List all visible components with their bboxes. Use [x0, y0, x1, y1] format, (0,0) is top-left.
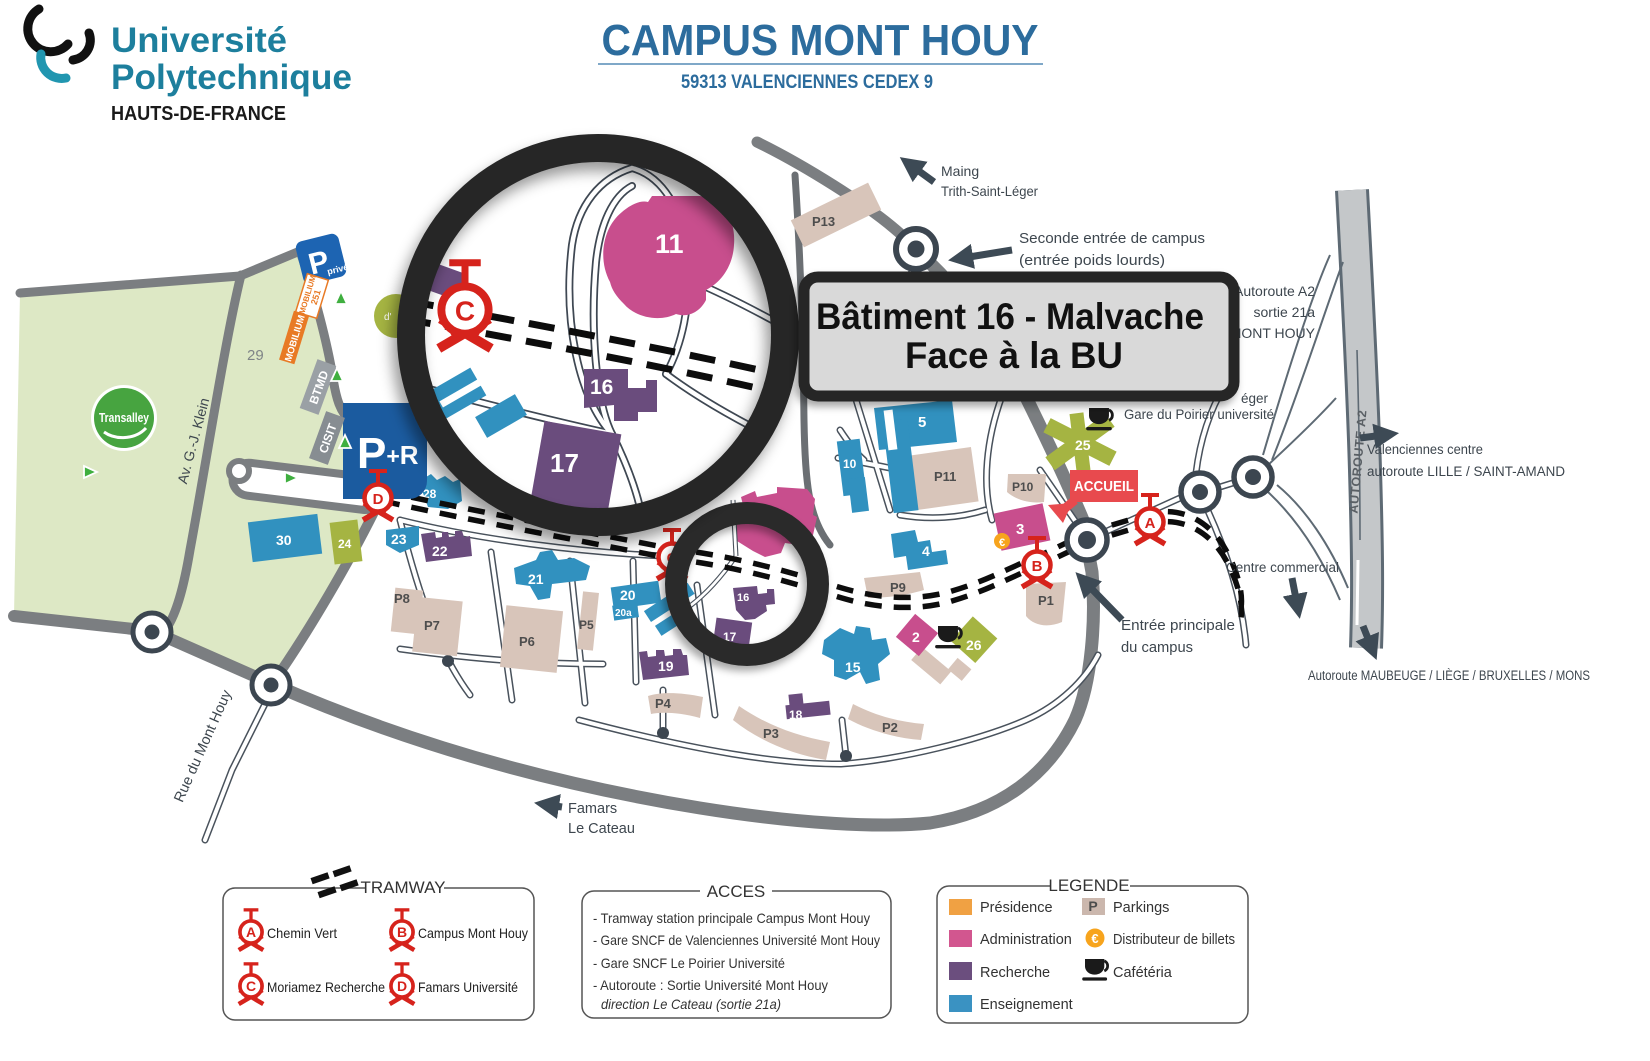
svg-text:sortie 21a: sortie 21a: [1254, 304, 1316, 320]
svg-text:16: 16: [590, 376, 613, 399]
svg-text:18: 18: [789, 708, 803, 722]
svg-text:4: 4: [922, 543, 930, 559]
svg-text:29: 29: [247, 347, 264, 364]
svg-text:P10: P10: [1012, 480, 1034, 494]
svg-text:- Gare SNCF de Valenciennes Un: - Gare SNCF de Valenciennes Université M…: [593, 932, 880, 948]
svg-text:16: 16: [737, 592, 749, 604]
svg-text:P8: P8: [394, 591, 410, 606]
svg-text:5: 5: [918, 414, 926, 431]
svg-text:Entrée principale: Entrée principale: [1121, 618, 1235, 634]
svg-text:Transalley: Transalley: [99, 410, 150, 425]
svg-text:- Tramway station principale C: - Tramway station principale Campus Mont…: [593, 910, 870, 926]
svg-text:P5: P5: [579, 618, 594, 632]
svg-text:Université: Université: [111, 21, 287, 60]
svg-text:(entrée poids lourds): (entrée poids lourds): [1019, 252, 1165, 269]
svg-text:C: C: [246, 978, 256, 994]
svg-text:Valenciennes centre: Valenciennes centre: [1367, 442, 1483, 457]
svg-text:ACCUEIL: ACCUEIL: [1074, 478, 1134, 495]
svg-text:Trith-Saint-Léger: Trith-Saint-Léger: [941, 183, 1038, 199]
svg-text:11: 11: [655, 229, 684, 259]
svg-text:LEGENDE: LEGENDE: [1048, 876, 1129, 895]
svg-text:A: A: [246, 924, 256, 940]
svg-text:Recherche: Recherche: [980, 965, 1050, 981]
svg-text:Administration: Administration: [980, 932, 1072, 948]
svg-text:D: D: [397, 978, 407, 994]
svg-text:Seconde entrée de campus: Seconde entrée de campus: [1019, 230, 1205, 247]
svg-text:- Gare SNCF Le Poirier Univers: - Gare SNCF Le Poirier Université: [593, 955, 785, 971]
svg-text:59313 VALENCIENNES CEDEX 9: 59313 VALENCIENNES CEDEX 9: [681, 72, 933, 93]
svg-text:P6: P6: [519, 634, 535, 649]
svg-text:Cafétéria: Cafétéria: [1113, 965, 1173, 981]
svg-text:€: €: [1091, 931, 1098, 946]
svg-text:B: B: [397, 924, 407, 940]
svg-text:P: P: [1088, 898, 1097, 914]
svg-text:Centre commercial: Centre commercial: [1226, 560, 1339, 575]
svg-text:Face à la BU: Face à la BU: [905, 335, 1123, 376]
svg-text:17: 17: [550, 448, 579, 478]
svg-text:Autoroute A2: Autoroute A2: [1234, 283, 1315, 299]
svg-text:Chemin Vert: Chemin Vert: [267, 925, 337, 941]
svg-text:Polytechnique: Polytechnique: [111, 58, 352, 97]
svg-text:26: 26: [966, 637, 982, 653]
svg-text:Gare du Poirier université: Gare du Poirier université: [1124, 407, 1274, 422]
svg-text:20a: 20a: [615, 608, 632, 619]
svg-text:Distributeur de billets: Distributeur de billets: [1113, 932, 1235, 948]
svg-text:Autoroute MAUBEUGE / LIÈGE / B: Autoroute MAUBEUGE / LIÈGE / BRUXELLES /…: [1308, 668, 1590, 683]
svg-text:25: 25: [1075, 437, 1091, 453]
svg-text:TRAMWAY: TRAMWAY: [361, 878, 446, 897]
svg-text:15: 15: [845, 659, 861, 675]
svg-text:Famars: Famars: [568, 801, 617, 817]
svg-text:P7: P7: [424, 618, 440, 633]
svg-text:direction Le Cateau (sortie 21: direction Le Cateau (sortie 21a): [601, 996, 781, 1012]
svg-text:CAMPUS MONT HOUY: CAMPUS MONT HOUY: [602, 16, 1039, 65]
svg-text:D: D: [373, 491, 384, 508]
svg-text:Moriamez Recherche: Moriamez Recherche: [267, 979, 385, 995]
svg-text:autoroute LILLE / SAINT-AMAND: autoroute LILLE / SAINT-AMAND: [1367, 464, 1565, 479]
svg-text:P13: P13: [812, 214, 835, 229]
svg-text:A: A: [1145, 515, 1156, 532]
svg-text:P4: P4: [655, 696, 672, 711]
svg-text:P3: P3: [763, 726, 779, 741]
svg-text:Le Cateau: Le Cateau: [568, 821, 635, 837]
svg-text:23: 23: [391, 531, 407, 547]
svg-text:B: B: [1032, 558, 1043, 575]
svg-text:d': d': [384, 312, 392, 323]
svg-text:ACCES: ACCES: [707, 882, 766, 901]
svg-text:P11: P11: [934, 469, 956, 484]
svg-text:Bâtiment 16 - Malvache: Bâtiment 16 - Malvache: [816, 296, 1204, 337]
svg-text:- Autoroute : Sortie Universit: - Autoroute : Sortie Université Mont Hou…: [593, 977, 828, 993]
svg-text:€: €: [999, 537, 1005, 549]
svg-text:Famars Université: Famars Université: [418, 979, 518, 995]
svg-text:24: 24: [338, 537, 352, 551]
svg-text:Maing: Maing: [941, 163, 979, 179]
svg-text:HAUTS-DE-FRANCE: HAUTS-DE-FRANCE: [111, 103, 286, 125]
svg-text:19: 19: [658, 658, 674, 674]
svg-text:Présidence: Présidence: [980, 900, 1053, 916]
svg-text:Campus Mont Houy: Campus Mont Houy: [418, 925, 528, 941]
svg-text:30: 30: [276, 532, 292, 548]
svg-text:du campus: du campus: [1121, 640, 1193, 656]
svg-text:Parkings: Parkings: [1113, 900, 1169, 916]
svg-text:3: 3: [1016, 521, 1024, 538]
svg-text:20: 20: [620, 587, 636, 603]
svg-text:21: 21: [528, 571, 544, 587]
svg-text:MONT HOUY: MONT HOUY: [1230, 325, 1316, 341]
svg-text:22: 22: [432, 543, 448, 559]
svg-text:P1: P1: [1038, 593, 1054, 608]
svg-text:éger: éger: [1241, 391, 1269, 406]
svg-text:P2: P2: [882, 720, 898, 735]
svg-text:10: 10: [843, 457, 857, 471]
svg-text:Enseignement: Enseignement: [980, 997, 1073, 1013]
svg-text:P9: P9: [890, 580, 906, 595]
svg-text:2: 2: [912, 629, 920, 645]
svg-text:C: C: [455, 296, 475, 327]
